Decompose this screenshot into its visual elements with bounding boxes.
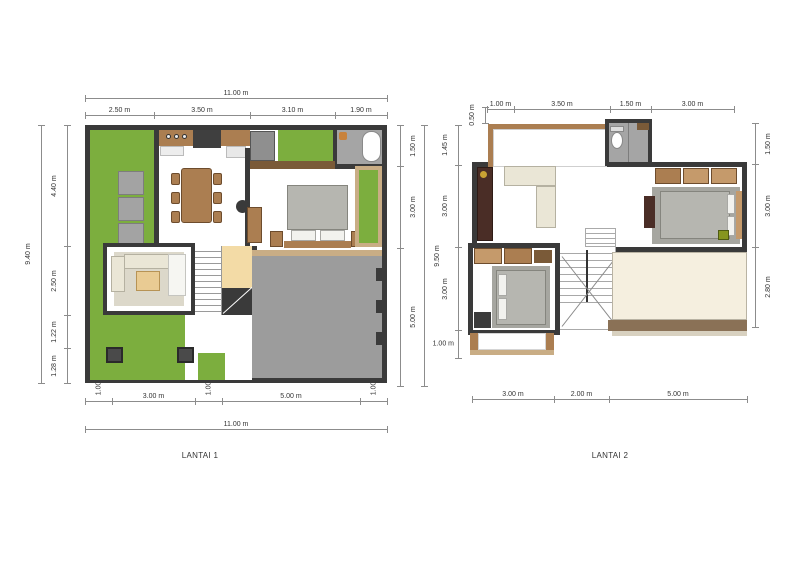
dim-segment: 3.50 m — [154, 103, 250, 116]
dining-chair — [213, 173, 222, 185]
dim-segment: 4.40 m — [56, 125, 68, 246]
planter-box — [106, 347, 123, 363]
dim-segment: 1.00 m — [85, 389, 112, 402]
pillow — [498, 298, 507, 320]
chest — [474, 312, 491, 328]
dim-left-chain-l2: 1.45 m 3.00 m 3.00 m 1.00 m — [447, 125, 459, 358]
dim-top-overall-l1: 11.00 m — [85, 86, 387, 99]
roof-deck-parapet — [608, 320, 747, 331]
balcony-post — [470, 333, 478, 350]
stairs — [195, 246, 222, 315]
coffee-table — [136, 271, 160, 291]
lawn-patch — [198, 353, 225, 380]
dim-segment: 3.00 m — [400, 166, 414, 248]
garden-paver — [118, 197, 144, 221]
dim-segment: 11.00 m — [85, 86, 387, 99]
dim-segment: 5.00 m — [609, 387, 747, 400]
dim-segment: 2.00 m — [554, 387, 609, 400]
dresser — [534, 250, 552, 263]
sofa — [124, 254, 170, 269]
inner-courtyard — [278, 130, 333, 162]
dim-segment: 1.50 m — [400, 125, 414, 166]
bed — [287, 185, 348, 230]
dim-segment: 3.00 m — [755, 164, 769, 247]
dim-segment: 1.22 m — [56, 315, 68, 348]
kitchen-sink — [160, 146, 184, 156]
dim-segment: 0.50 m — [474, 107, 486, 123]
dim-segment: 1.00 m — [195, 389, 222, 402]
front-balcony — [493, 129, 607, 167]
wall-stub — [376, 268, 382, 281]
dim-segment: 2.50 m — [85, 103, 154, 116]
dim-bottom-chain-l2: 3.00 m 2.00 m 5.00 m — [472, 387, 747, 400]
headboard — [736, 191, 742, 239]
front-yard — [90, 315, 185, 380]
wardrobe — [683, 168, 709, 184]
dim-segment: 1.28 m — [56, 348, 68, 383]
stairs — [560, 247, 616, 305]
dim-segment: 2.80 m — [755, 247, 769, 327]
dim-top-offset-l2: 0.50 m — [474, 107, 486, 123]
partition-wall — [154, 130, 159, 246]
dining-chair — [171, 173, 180, 185]
pillow — [291, 230, 316, 241]
pillow — [498, 274, 507, 296]
armchair — [168, 254, 186, 296]
balcony-railing — [470, 350, 554, 355]
decor-item — [480, 171, 487, 178]
balcony-post — [546, 333, 554, 350]
headboard — [284, 241, 351, 248]
dining-chair — [213, 211, 222, 223]
dim-segment: 1.50 m — [755, 123, 769, 164]
stove — [193, 130, 221, 148]
rear-balcony — [478, 333, 546, 350]
pillow — [727, 194, 735, 214]
roof-deck-shadow — [612, 331, 747, 336]
kitchen-appliance — [226, 146, 246, 158]
wall-stub — [376, 332, 382, 345]
console-shelf — [250, 161, 335, 169]
garden-paver — [118, 171, 144, 195]
dim-left-overall-l1: 9.40 m — [30, 125, 42, 383]
bathroom-divider — [628, 123, 629, 162]
dim-bottom-overall-l1: 11.00 m — [85, 417, 387, 430]
dim-segment: 3.00 m — [447, 247, 459, 330]
plan-title-lantai-2: LANTAI 2 — [565, 451, 655, 460]
nightstand — [270, 231, 283, 247]
dim-segment: 1.00 m — [360, 389, 387, 402]
dim-segment: 5.00 m — [400, 248, 414, 386]
dim-segment: 3.10 m — [250, 103, 335, 116]
pillow — [320, 230, 345, 241]
dining-chair — [171, 211, 180, 223]
wardrobe — [711, 168, 737, 184]
plan-title-lantai-1: LANTAI 1 — [155, 451, 245, 460]
stove-burner — [166, 134, 171, 139]
dim-right-chain-l1: 1.50 m 3.00 m 5.00 m — [400, 125, 414, 386]
toilet — [611, 132, 623, 149]
shower-head-icon — [339, 132, 347, 140]
wall-stub — [376, 300, 382, 313]
dim-segment: 9.40 m — [30, 125, 42, 383]
wardrobe — [504, 248, 532, 264]
dim-segment: 3.00 m — [447, 165, 459, 247]
dim-segment: 1.00 m — [447, 330, 459, 358]
roof-deck — [612, 252, 747, 320]
tv-cabinet — [477, 167, 493, 241]
dim-top-chain-l2: 1.00 m 3.50 m 1.50 m 3.00 m — [487, 97, 734, 110]
kitchen-counter-corner — [221, 130, 250, 146]
side-garden-strip — [90, 243, 103, 315]
stairs-upper-flight — [585, 228, 616, 247]
storage-closet — [250, 131, 275, 161]
sofa — [504, 166, 556, 186]
wardrobe — [474, 248, 502, 264]
dim-segment: 2.50 m — [56, 246, 68, 315]
sofa — [111, 256, 125, 292]
dim-segment: 1.90 m — [335, 103, 387, 116]
dim-bottom-chain-l1: 1.00 m 3.00 m 1.00 m 5.00 m 1.00 m — [85, 389, 387, 402]
dim-segment: 1.45 m — [447, 125, 459, 165]
stove-burner — [174, 134, 179, 139]
entry-landing — [222, 246, 252, 288]
dining-table — [181, 168, 212, 223]
dim-segment: 11.00 m — [85, 417, 387, 430]
dim-left-chain-l1: 4.40 m 2.50 m 1.22 m 1.28 m — [56, 125, 68, 383]
bath-shelf — [637, 123, 649, 130]
carport — [252, 256, 382, 378]
dining-chair — [213, 192, 222, 204]
dim-segment: 3.00 m — [651, 97, 734, 110]
planter-box — [177, 347, 194, 363]
dim-segment: 3.00 m — [472, 387, 554, 400]
stove-burner — [182, 134, 187, 139]
dim-segment: 3.00 m — [112, 389, 195, 402]
dim-segment: 1.00 m — [487, 97, 514, 110]
dim-segment: 3.50 m — [514, 97, 610, 110]
plant-icon — [718, 230, 729, 240]
dim-segment: 1.50 m — [610, 97, 651, 110]
dining-chair — [171, 192, 180, 204]
desk — [644, 196, 655, 228]
floorplan-sheet: 11.00 m 2.50 m 3.50 m 3.10 m 1.90 m 9.40… — [0, 0, 804, 568]
wardrobe — [655, 168, 681, 184]
dim-top-chain-l1: 2.50 m 3.50 m 3.10 m 1.90 m — [85, 103, 387, 116]
sofa — [536, 186, 556, 228]
desk — [247, 207, 262, 243]
bathtub — [362, 131, 381, 162]
side-garden-right — [359, 170, 378, 243]
dim-segment: 5.00 m — [222, 389, 360, 402]
dim-right-chain-l2: 1.50 m 3.00 m 2.80 m — [755, 123, 769, 327]
